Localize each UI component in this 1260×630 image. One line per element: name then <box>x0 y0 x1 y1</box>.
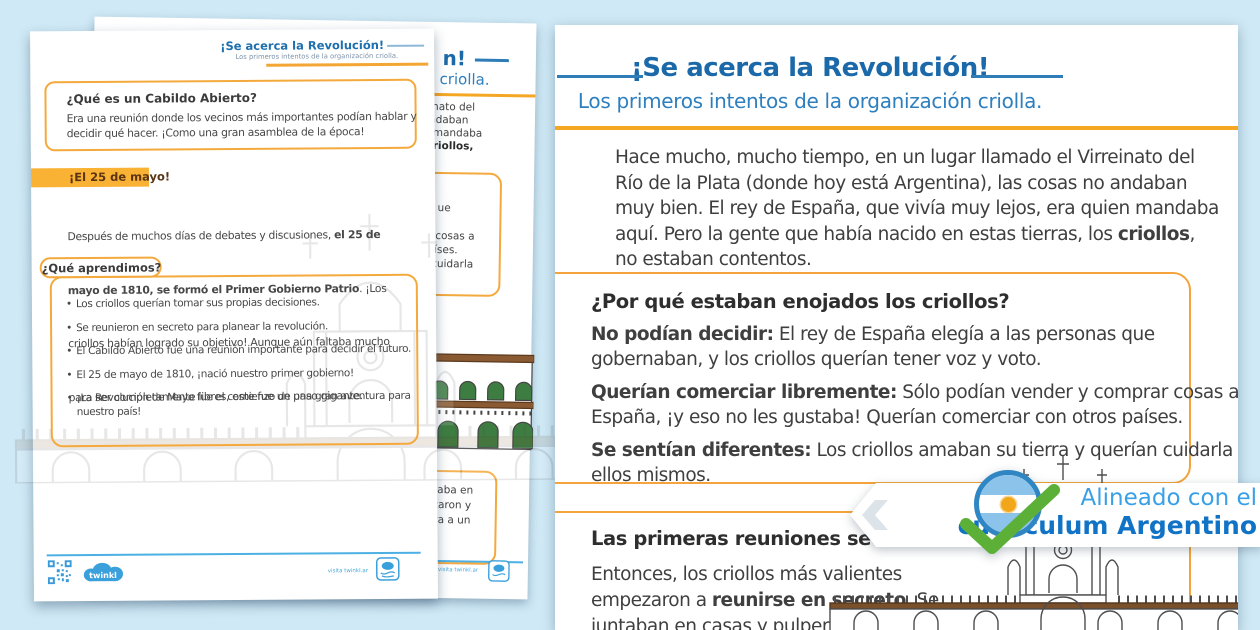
box-text-line: decidir qué hacer. ¡Como una gran asambl… <box>67 124 405 141</box>
title-rule <box>387 45 424 47</box>
orange-rule <box>555 126 1238 130</box>
back-intro-fragment: ndaban <box>429 114 469 127</box>
thumbnail-page-front[interactable]: ¡Se acerca la Revolución! Los primeros i… <box>30 29 438 602</box>
header-title: ¡Se acerca la Revolución! <box>220 38 384 53</box>
box-que-aprendimos: Los criollos querían tomar sus propias d… <box>50 274 419 448</box>
footer-rule <box>47 552 421 557</box>
title-rule-left <box>557 75 643 78</box>
curriculum-badge: Alineado con el currículum Argentino <box>850 470 1260 562</box>
list-item: Los criollos querían tomar sus propias d… <box>66 296 411 312</box>
box-heading: ¿Qué es un Cabildo Abierto? <box>66 90 404 106</box>
list-item: ¡La Revolución de Mayo fue el comienzo d… <box>67 390 412 419</box>
checkmark-icon <box>958 484 1062 556</box>
twinkl-stamp-icon <box>488 560 510 582</box>
title-rule <box>475 59 509 62</box>
twinkl-logo-text: twinkl <box>89 571 117 580</box>
orange-rule <box>266 63 428 67</box>
list-item: El Cabildo Abierto fue una reunión impor… <box>66 343 411 359</box>
reason-item: Querían comerciar libremente: Sólo podía… <box>591 381 1175 430</box>
page-title: ¡Se acerca la Revolución! <box>615 53 1005 83</box>
box-cabildo-abierto: ¿Qué es un Cabildo Abierto? Era una reun… <box>44 79 416 152</box>
back-intro-fragment: inato del <box>429 101 475 114</box>
list-item: Se reunieron en secreto para planear la … <box>66 319 411 335</box>
twinkl-logo: twinkl <box>80 561 128 584</box>
label-25-de-mayo: ¡El 25 de mayo! <box>31 168 149 188</box>
visit-link[interactable]: visita twinkl.ar <box>328 568 368 574</box>
qr-code-icon <box>48 560 72 584</box>
twinkl-stamp-icon <box>376 557 400 581</box>
reason-item: No podían decidir: El rey de España eleg… <box>591 323 1175 372</box>
back-subtitle-fragment: criolla. <box>439 70 489 89</box>
visit-link[interactable]: visita twinkl.ar <box>438 567 478 574</box>
intro-paragraph: Hace mucho, mucho tiempo, en un lugar ll… <box>615 145 1219 273</box>
pill-que-aprendimos: ¿Qué aprendimos? <box>40 257 162 279</box>
back-title-fragment: n! <box>442 46 466 70</box>
box-heading: ¿Por qué estaban enojados los criollos? <box>591 290 1175 313</box>
title-rule-right <box>971 75 1063 78</box>
page-subtitle: Los primeros intentos de la organización… <box>575 89 1045 113</box>
list-item: El 25 de mayo de 1810, ¡nació nuestro pr… <box>66 366 411 382</box>
header-subtitle: Los primeros intentos de la organización… <box>235 52 398 61</box>
worksheet-preview-canvas: { "main_page": { "title": "¡Se acerca la… <box>0 0 1260 630</box>
